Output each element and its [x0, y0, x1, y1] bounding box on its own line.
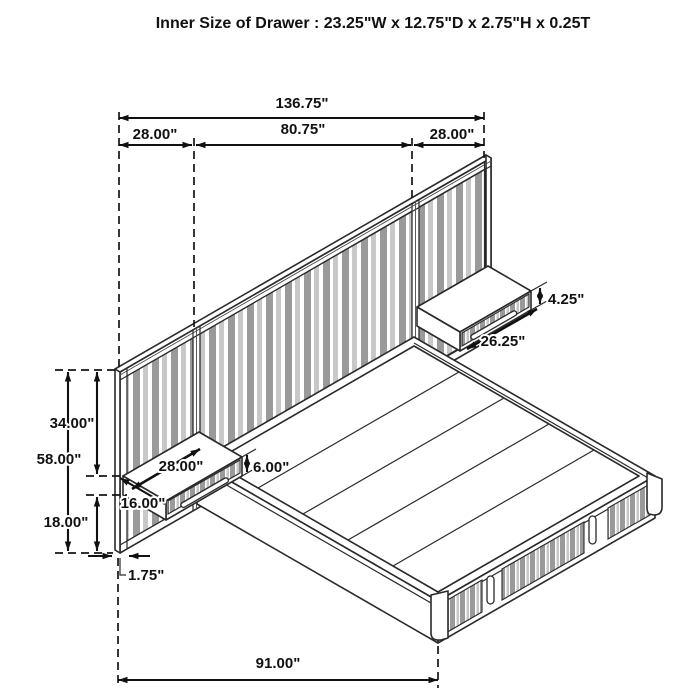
wall-left-edge	[115, 369, 120, 553]
foot-drawer-handle-right	[589, 516, 596, 544]
total-width-label: 136.75"	[276, 95, 329, 112]
left-nightstand-height-label: 6.00"	[253, 459, 289, 476]
total-panel-height-label: 58.00"	[37, 451, 82, 468]
left-height-dimensions: 58.00" 34.00" 18.00"	[37, 370, 127, 553]
right-section-width-label: 28.00"	[430, 126, 475, 143]
thickness-leader	[120, 558, 126, 575]
upper-panel-height-label: 34.00"	[50, 415, 95, 432]
lower-panel-height-label: 18.00"	[44, 514, 89, 531]
bed-length-label: 91.00"	[256, 655, 301, 672]
left-nightstand-width-label: 28.00"	[159, 458, 204, 475]
left-nightstand-depth-label: 16.00"	[121, 495, 166, 512]
diagram-canvas: Inner Size of Drawer : 23.25"W x 12.75"D…	[0, 0, 700, 700]
left-section-width-label: 28.00"	[133, 126, 178, 143]
bed-corner-post-front	[431, 591, 448, 640]
center-section-width-label: 80.75"	[281, 121, 326, 138]
foot-drawer-handle-left	[487, 576, 494, 604]
drawer-inner-size-title: Inner Size of Drawer : 23.25"W x 12.75"D…	[156, 15, 591, 32]
right-nightstand-width-label: 26.25"	[481, 333, 526, 350]
bed-dimension-diagram: Inner Size of Drawer : 23.25"W x 12.75"D…	[0, 0, 700, 700]
thickness-dimension: 1.75"	[88, 556, 164, 584]
right-nightstand-height-label: 4.25"	[548, 291, 584, 308]
bed-corner-post-right	[647, 473, 662, 515]
panel-thickness-label: 1.75"	[128, 567, 164, 584]
